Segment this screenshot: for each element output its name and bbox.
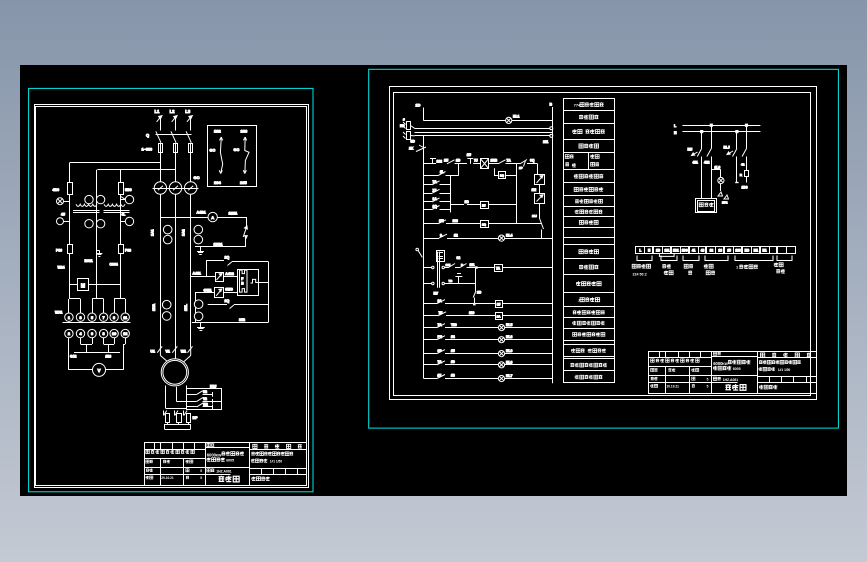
svg-text:B: B — [550, 103, 553, 107]
svg-text:W1: W1 — [181, 350, 186, 354]
svg-text:A412: A412 — [225, 272, 234, 276]
svg-text:1P: 1P — [519, 166, 523, 170]
svg-text:V1: V1 — [166, 350, 170, 354]
svg-text:1D1: 1D1 — [673, 249, 679, 253]
svg-text:U1: U1 — [150, 350, 155, 354]
svg-text:20.10.21: 20.10.21 — [667, 385, 680, 389]
svg-text:HL1: HL1 — [513, 115, 520, 119]
svg-text:110: 110 — [469, 311, 474, 315]
svg-text:1A2: 1A2 — [182, 229, 186, 236]
svg-text:9: 9 — [113, 316, 115, 320]
svg-text:#J: #J — [438, 374, 442, 378]
svg-text:2: 2 — [68, 332, 70, 336]
svg-text:1P2: 1P2 — [722, 201, 728, 205]
svg-text:5: 5 — [200, 476, 202, 480]
svg-text:1B: 1B — [465, 200, 470, 204]
svg-text:T10: T10 — [451, 323, 457, 327]
svg-text:BP: BP — [193, 416, 199, 420]
svg-text:2U: 2U — [467, 153, 472, 157]
svg-text:#5: #5 — [451, 349, 455, 353]
svg-text:115: 115 — [446, 263, 451, 267]
svg-text:A411: A411 — [193, 272, 201, 276]
svg-text:1KB: 1KB — [491, 159, 498, 163]
svg-text:7A: 7A — [433, 180, 438, 184]
svg-text:4U: 4U — [61, 213, 66, 217]
svg-text:15: 15 — [727, 249, 731, 253]
svg-text:HL7: HL7 — [506, 374, 513, 378]
svg-text:2Q: 2Q — [225, 256, 230, 260]
svg-text:13: 13 — [718, 249, 722, 253]
svg-text:#13: #13 — [106, 355, 112, 359]
svg-text:12: 12 — [710, 249, 714, 253]
svg-text:1D: 1D — [416, 104, 421, 108]
svg-text:41: 41 — [692, 249, 696, 253]
svg-text:11: 11 — [123, 316, 127, 320]
svg-text:L2: L2 — [170, 109, 176, 114]
svg-text:111: 111 — [543, 140, 548, 144]
svg-text:RLJ: RLJ — [724, 146, 730, 150]
svg-text:10: 10 — [112, 332, 116, 336]
svg-text:HL4: HL4 — [506, 234, 513, 238]
svg-text:7A: 7A — [507, 159, 512, 163]
svg-text:8#: 8# — [497, 303, 501, 307]
svg-text:7#: 7# — [439, 311, 443, 315]
svg-text:L3: L3 — [185, 109, 191, 114]
svg-text:GW1: GW1 — [204, 289, 212, 293]
svg-text:1~380: 1~380 — [142, 148, 153, 152]
svg-text:2Q: 2Q — [225, 299, 230, 303]
svg-text:PB: PB — [438, 335, 443, 339]
svg-text:M0: M0 — [745, 249, 750, 253]
svg-text:Q: Q — [146, 133, 149, 138]
svg-text:L: L — [639, 249, 641, 253]
svg-text:1HA: 1HA — [152, 303, 156, 311]
svg-text:2A: 2A — [438, 299, 443, 303]
svg-text:HL0: HL0 — [506, 360, 513, 364]
svg-text:#L: #L — [440, 170, 444, 174]
svg-text:1M: 1M — [532, 188, 537, 192]
svg-text:N: N — [648, 249, 651, 253]
svg-text:P03: P03 — [125, 249, 131, 253]
svg-text:#4: #4 — [451, 335, 455, 339]
svg-text:3D: 3D — [411, 140, 416, 144]
svg-text:HL5: HL5 — [506, 323, 513, 327]
svg-text:7A: 7A — [438, 360, 443, 364]
svg-text:V2: V2 — [203, 397, 207, 401]
svg-text:W2: W2 — [203, 403, 208, 407]
svg-text:GC: GC — [194, 175, 200, 180]
svg-text:F: F — [241, 277, 243, 281]
svg-text:RU: RU — [688, 148, 693, 152]
svg-text:7J: 7J — [474, 159, 478, 163]
svg-text:6Q: 6Q — [530, 159, 535, 163]
svg-text:B: B — [241, 282, 244, 286]
svg-text:1HZ.A081: 1HZ.A081 — [216, 470, 232, 474]
svg-text:11J: 11J — [532, 214, 537, 218]
svg-text:U2: U2 — [203, 390, 207, 394]
svg-text:7A: 7A — [438, 323, 443, 327]
svg-text:5: 5 — [91, 316, 93, 320]
svg-text:A4B1: A4B1 — [197, 211, 206, 215]
svg-text:GJ2: GJ2 — [70, 355, 77, 359]
svg-text:WX1: WX1 — [55, 311, 62, 315]
svg-text:M: M — [81, 283, 85, 289]
svg-text:GC: GC — [210, 149, 216, 153]
svg-text:1D0: 1D0 — [742, 186, 748, 190]
svg-text:1: 1 — [736, 265, 739, 270]
svg-text:B901: B901 — [85, 259, 93, 263]
svg-text:7B: 7B — [449, 279, 454, 283]
svg-text:113: 113 — [453, 219, 458, 223]
svg-text:1#1 1/50: 1#1 1/50 — [778, 368, 791, 372]
svg-text:HL9: HL9 — [506, 349, 513, 353]
svg-text:1M01: 1M01 — [214, 242, 223, 246]
svg-text:1S3: 1S3 — [241, 130, 248, 134]
svg-text:KW: KW — [216, 454, 222, 458]
svg-text:1Q: 1Q — [433, 205, 438, 209]
svg-text:111: 111 — [470, 263, 475, 267]
svg-text:KW: KW — [722, 362, 728, 366]
svg-text:1S5: 1S5 — [240, 181, 247, 185]
svg-text:133: 133 — [735, 249, 741, 253]
svg-text:412: 412 — [704, 161, 710, 165]
svg-text:2Q: 2Q — [482, 222, 487, 226]
svg-text:43: 43 — [701, 249, 705, 253]
svg-text:2A: 2A — [497, 315, 502, 319]
svg-text:M7: M7 — [434, 292, 439, 296]
svg-text:H: H — [674, 131, 677, 135]
svg-text:1S2: 1S2 — [214, 130, 221, 134]
svg-text:W24: W24 — [58, 266, 65, 270]
svg-text:N1: N1 — [763, 249, 767, 253]
svg-text:1: 1 — [68, 316, 70, 320]
svg-text:7A: 7A — [496, 267, 501, 271]
svg-text:5: 5 — [707, 377, 709, 381]
svg-text:1D: 1D — [656, 249, 661, 253]
svg-text:L1: L1 — [155, 109, 161, 114]
svg-text:1S4: 1S4 — [214, 181, 222, 185]
svg-text:#8: #8 — [451, 374, 455, 378]
svg-text:1D0: 1D0 — [682, 249, 688, 253]
svg-text:6W0: 6W0 — [225, 288, 232, 292]
svg-text:7: 7 — [103, 316, 105, 320]
svg-text:#D: #D — [456, 159, 461, 163]
svg-text:R: R — [740, 173, 743, 177]
svg-text:1A: 1A — [433, 197, 438, 201]
svg-text:2Q: 2Q — [500, 174, 505, 178]
svg-text:A: A — [211, 215, 214, 220]
svg-text:K1#: K1# — [210, 385, 216, 389]
svg-text:12: 12 — [123, 332, 127, 336]
svg-text:1HL: 1HL — [184, 303, 188, 311]
svg-text:2K: 2K — [409, 147, 414, 151]
svg-text:#L6: #L6 — [715, 166, 721, 170]
svg-text:2D: 2D — [477, 291, 482, 295]
svg-text:6005: 6005 — [226, 459, 234, 463]
svg-text:4L: 4L — [122, 213, 126, 217]
svg-text:1#1 1/50: 1#1 1/50 — [270, 459, 283, 463]
svg-text:1HZ.A081: 1HZ.A081 — [723, 378, 739, 382]
svg-text:P00: P00 — [56, 249, 62, 253]
svg-text:5: 5 — [200, 469, 202, 473]
svg-text:#: # — [403, 118, 405, 122]
svg-text:4B0: 4B0 — [53, 188, 60, 192]
svg-text:#6: #6 — [451, 360, 455, 364]
svg-text:6: 6 — [91, 332, 93, 336]
svg-text:102: 102 — [437, 160, 443, 164]
svg-text:5B0: 5B0 — [125, 188, 132, 192]
svg-text:111: 111 — [665, 249, 670, 253]
svg-text:GC: GC — [234, 148, 240, 152]
svg-text:ZJ: ZJ — [433, 188, 437, 192]
svg-text:224 50:2: 224 50:2 — [633, 273, 647, 277]
svg-text:3: 3 — [79, 316, 81, 320]
svg-text:8: 8 — [103, 332, 105, 336]
svg-text:ZJ: ZJ — [482, 204, 486, 208]
svg-text:411: 411 — [693, 161, 698, 165]
svg-text:M1: M1 — [754, 249, 759, 253]
svg-text:20.10.21: 20.10.21 — [161, 476, 174, 480]
svg-text:42: 42 — [741, 163, 745, 167]
svg-text:1M: 1M — [439, 219, 444, 223]
svg-text:92: 92 — [457, 256, 461, 260]
svg-text:6005: 6005 — [733, 367, 741, 371]
svg-text:L: L — [674, 124, 677, 128]
svg-text:5: 5 — [707, 385, 709, 389]
svg-text:9.: 9. — [440, 233, 443, 237]
svg-text:8#2: 8#2 — [239, 318, 245, 322]
svg-text:1A1: 1A1 — [151, 229, 155, 236]
svg-text:1U: 1U — [444, 159, 449, 163]
svg-text:1M11: 1M11 — [229, 212, 238, 216]
svg-text:C604: C604 — [110, 263, 118, 267]
svg-text:#2: #2 — [454, 233, 458, 237]
svg-text:HL3: HL3 — [506, 335, 513, 339]
